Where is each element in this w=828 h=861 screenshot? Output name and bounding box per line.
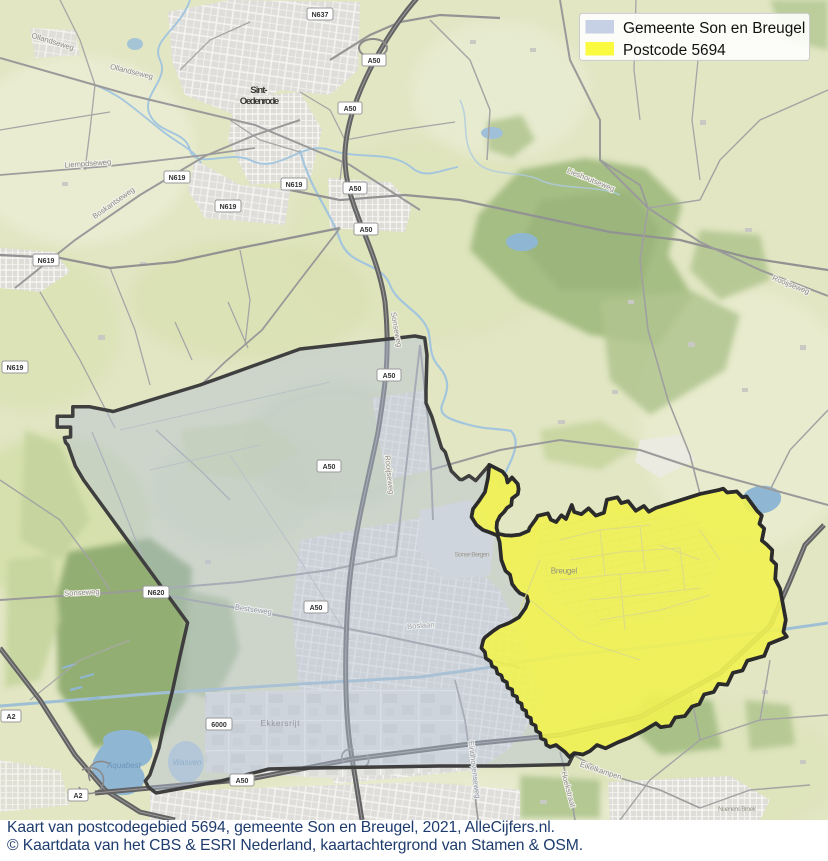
svg-text:Wasven: Wasven	[173, 758, 202, 767]
svg-text:A50: A50	[383, 373, 396, 380]
svg-text:Sonseweg: Sonseweg	[64, 587, 100, 598]
svg-text:N619: N619	[286, 182, 303, 189]
svg-text:Oedenrode: Oedenrode	[240, 96, 280, 107]
svg-text:Breugel: Breugel	[551, 567, 578, 576]
svg-text:N620: N620	[148, 590, 165, 597]
svg-text:Ekkersrijt: Ekkersrijt	[261, 719, 301, 728]
svg-text:Postcode 5694: Postcode 5694	[623, 42, 726, 59]
svg-text:Nuenens Broek: Nuenens Broek	[718, 806, 757, 813]
svg-text:A2: A2	[74, 793, 83, 800]
svg-text:N619: N619	[38, 258, 55, 265]
svg-text:N637: N637	[312, 12, 329, 19]
svg-text:A50: A50	[368, 58, 381, 65]
svg-text:Aquabest: Aquabest	[106, 761, 142, 770]
svg-text:6000: 6000	[211, 722, 227, 729]
svg-text:A50: A50	[236, 778, 249, 785]
svg-text:A50: A50	[310, 605, 323, 612]
svg-text:N619: N619	[169, 175, 186, 182]
svg-text:A50: A50	[323, 464, 336, 471]
svg-text:Sonse Bergen: Sonse Bergen	[455, 552, 490, 559]
svg-text:Sint-: Sint-	[250, 85, 268, 96]
svg-text:A2: A2	[7, 714, 16, 721]
svg-text:A50: A50	[344, 106, 357, 113]
svg-text:A50: A50	[349, 186, 362, 193]
svg-text:N619: N619	[220, 204, 237, 211]
svg-text:Boslaan: Boslaan	[407, 620, 435, 631]
svg-text:Gemeente Son en Breugel: Gemeente Son en Breugel	[623, 20, 805, 37]
svg-text:A50: A50	[360, 227, 373, 234]
svg-text:N619: N619	[7, 365, 24, 372]
